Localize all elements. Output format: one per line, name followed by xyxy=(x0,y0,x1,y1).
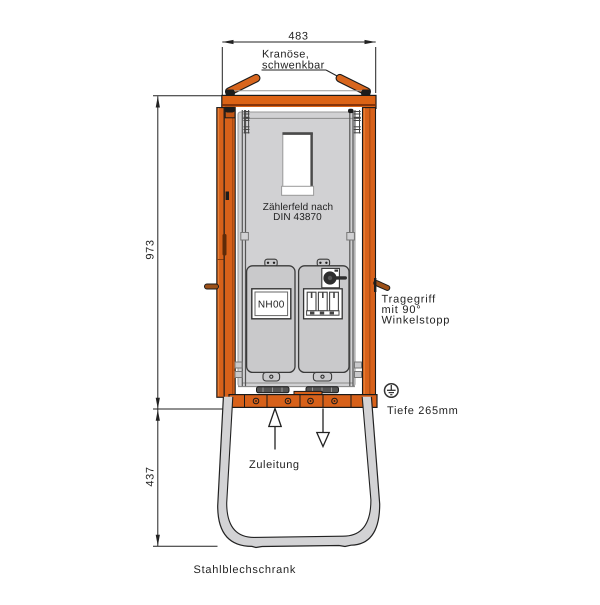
svg-text:483: 483 xyxy=(288,31,308,43)
svg-text:Winkelstopp: Winkelstopp xyxy=(382,315,451,327)
svg-text:973: 973 xyxy=(145,239,157,259)
svg-text:DIN 43870: DIN 43870 xyxy=(273,212,322,223)
svg-text:Tiefe 265mm: Tiefe 265mm xyxy=(387,405,458,417)
svg-text:NH00: NH00 xyxy=(258,300,285,311)
svg-text:437: 437 xyxy=(145,466,157,486)
svg-text:Zählerfeld nach: Zählerfeld nach xyxy=(263,202,333,213)
svg-text:Stahlblechschrank: Stahlblechschrank xyxy=(194,564,297,576)
svg-text:Zuleitung: Zuleitung xyxy=(249,459,300,471)
